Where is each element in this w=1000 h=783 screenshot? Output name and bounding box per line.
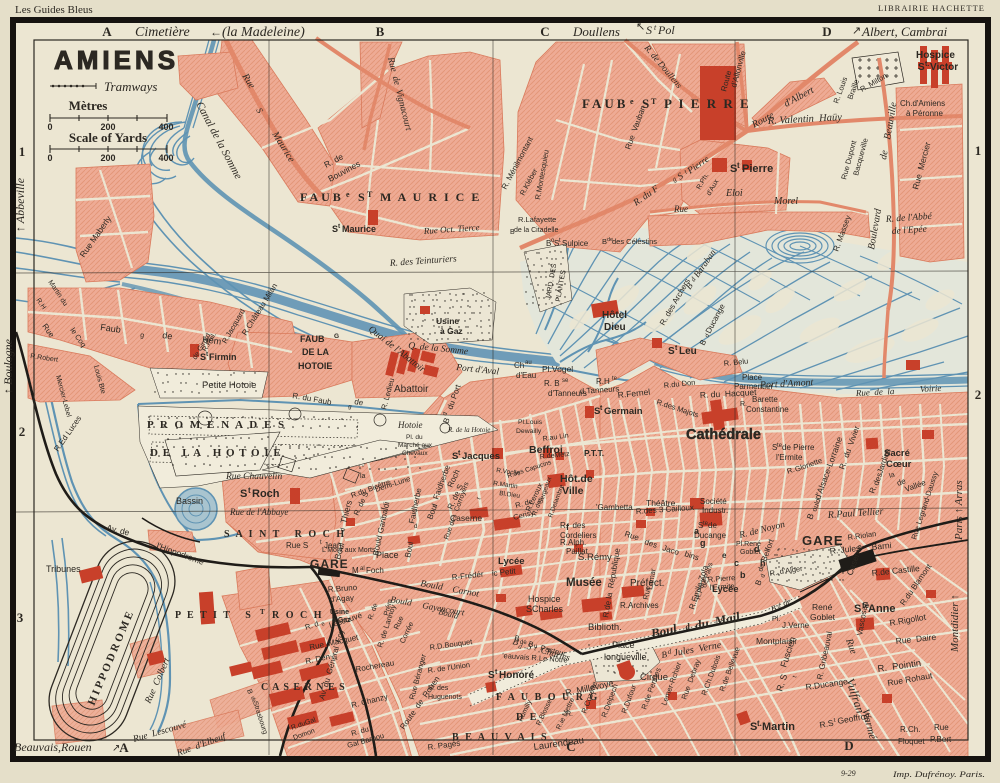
svg-text:Paillat: Paillat: [566, 547, 589, 556]
svg-text:2: 2: [975, 387, 982, 402]
svg-text:S: S: [668, 346, 675, 357]
svg-text:1: 1: [19, 144, 26, 159]
svg-text:Barni: Barni: [871, 540, 892, 552]
svg-text:A: A: [102, 24, 112, 39]
svg-text:P.T.T.: P.T.T.: [584, 448, 604, 458]
svg-text:Abattoir: Abattoir: [394, 384, 429, 395]
svg-text:FAUB: FAUB: [300, 190, 344, 204]
svg-text:g: g: [700, 538, 706, 548]
svg-text:Imp. Dufrénoy. Paris.: Imp. Dufrénoy. Paris.: [892, 769, 985, 779]
svg-text:Constantine: Constantine: [746, 405, 789, 414]
svg-text:↑ Boulogne: ↑ Boulogne: [1, 338, 15, 394]
svg-text:R.Archives: R.Archives: [620, 601, 659, 610]
svg-text:b: b: [740, 570, 746, 580]
svg-text:Les Guides Bleus: Les Guides Bleus: [15, 4, 93, 16]
svg-text:à Péronne: à Péronne: [906, 109, 943, 118]
svg-text:e: e: [722, 551, 727, 560]
svg-text:Doullens: Doullens: [572, 24, 620, 39]
svg-text:200: 200: [100, 153, 115, 163]
svg-text:Usine: Usine: [436, 316, 459, 326]
svg-text:A: A: [119, 740, 129, 755]
svg-text:Huguenots: Huguenots: [428, 694, 462, 701]
svg-text:D: D: [844, 738, 853, 753]
svg-text:des Célestins: des Célestins: [612, 237, 657, 246]
svg-text:Barette: Barette: [752, 395, 778, 404]
svg-text:Tribunes: Tribunes: [46, 564, 81, 574]
svg-text:Rue de la: Rue de la: [855, 386, 895, 398]
svg-text:B: B: [376, 24, 385, 39]
svg-text:R.: R.: [740, 401, 747, 408]
svg-text:t.: t.: [925, 61, 929, 68]
svg-text:Foch: Foch: [366, 566, 384, 575]
svg-text:S: S: [646, 23, 652, 37]
svg-text:e: e: [630, 97, 634, 106]
svg-text:Anne: Anne: [868, 603, 896, 615]
svg-text:HOTOIE: HOTOIE: [298, 361, 332, 371]
svg-text:Maurice: Maurice: [342, 224, 376, 234]
svg-text:Pl. du: Pl. du: [406, 434, 423, 441]
svg-text:Industr.: Industr.: [702, 506, 728, 515]
svg-text:Charles: Charles: [532, 604, 564, 614]
svg-text:Voirie: Voirie: [920, 383, 942, 394]
svg-text:Scale of Yards: Scale of Yards: [69, 130, 147, 145]
svg-text:al: al: [360, 566, 365, 572]
svg-text:0: 0: [47, 153, 52, 163]
svg-text:Cordeliers: Cordeliers: [560, 531, 596, 540]
svg-text:Martin: Martin: [762, 721, 795, 733]
svg-text:←: ←: [210, 25, 222, 39]
svg-text:Paris ↑ Arras: Paris ↑ Arras: [953, 480, 965, 541]
svg-text:Lycée: Lycée: [712, 584, 739, 595]
svg-text:Pol: Pol: [657, 23, 675, 37]
svg-text:R.Ch.: R.Ch.: [900, 725, 920, 734]
svg-text:Dewailly: Dewailly: [516, 428, 542, 435]
svg-text:Cimetière: Cimetière: [135, 25, 190, 40]
svg-text:1: 1: [975, 143, 982, 158]
svg-text:Marché aux: Marché aux: [398, 442, 433, 449]
svg-text:2: 2: [19, 424, 26, 439]
svg-text:0: 0: [47, 122, 52, 132]
svg-text:à Gaz: à Gaz: [440, 326, 463, 336]
svg-text:longueville: longueville: [604, 652, 647, 662]
svg-text:Jacques: Jacques: [462, 451, 500, 462]
svg-text:Albert, Cambrai: Albert, Cambrai: [861, 24, 948, 39]
svg-text:Beauvais,Rouen: Beauvais,Rouen: [14, 740, 92, 754]
svg-text:S: S: [918, 62, 925, 73]
svg-text:Usine: Usine: [330, 609, 349, 616]
svg-text:Tramways: Tramways: [104, 79, 157, 94]
svg-text:Pl.: Pl.: [772, 616, 780, 623]
svg-text:au: au: [525, 360, 532, 366]
svg-text:C A S E R N E S: C A S E R N E S: [261, 682, 346, 693]
svg-text:M: M: [352, 566, 359, 575]
svg-text:Rue S: Rue S: [286, 541, 308, 550]
svg-text:de Pierre: de Pierre: [782, 443, 815, 452]
svg-text:J.Verne: J.Verne: [782, 621, 810, 630]
svg-text:Rue: Rue: [673, 204, 688, 214]
svg-text:R.Lafayette: R.Lafayette: [518, 215, 556, 224]
svg-text:S: S: [240, 488, 247, 500]
svg-text:Firmin: Firmin: [209, 352, 237, 362]
svg-text:Sulpice: Sulpice: [562, 239, 589, 248]
svg-text:9-29: 9-29: [841, 769, 856, 778]
svg-text:se: se: [562, 378, 569, 384]
svg-text:Biblioth.: Biblioth.: [588, 622, 622, 633]
svg-text:Hospice: Hospice: [528, 594, 561, 604]
svg-text:GARE: GARE: [310, 557, 349, 571]
svg-text:Eloi: Eloi: [725, 188, 743, 199]
svg-text:Place: Place: [742, 373, 763, 382]
svg-text:t: t: [737, 161, 740, 170]
svg-text:Cœur: Cœur: [886, 459, 912, 470]
svg-text:Ch: Ch: [514, 361, 524, 370]
svg-text:AMIENS: AMIENS: [54, 45, 179, 75]
svg-text:G: G: [334, 333, 339, 340]
svg-text:Hôt.de: Hôt.de: [560, 473, 593, 485]
svg-text:T: T: [367, 190, 373, 199]
svg-text:Pierre: Pierre: [742, 163, 773, 175]
svg-text:↑ Abbeville: ↑ Abbeville: [13, 177, 27, 232]
svg-text:Musée: Musée: [566, 577, 602, 589]
svg-text:LIBRAIRIE HACHETTE: LIBRAIRIE HACHETTE: [878, 3, 985, 13]
svg-text:t: t: [248, 486, 251, 495]
svg-text:de: de: [708, 521, 717, 530]
svg-text:FAUB: FAUB: [582, 96, 628, 111]
svg-text:Victor: Victor: [930, 62, 958, 73]
svg-text:S: S: [358, 190, 365, 204]
svg-text:P.Bert: P.Bert: [930, 735, 952, 744]
svg-text:M A U R I C E: M A U R I C E: [380, 190, 481, 204]
svg-text:Rue de l'Abbaye: Rue de l'Abbaye: [229, 507, 288, 517]
svg-text:d'Eau: d'Eau: [516, 371, 536, 380]
svg-text:Pl.Vogel: Pl.Vogel: [542, 364, 573, 374]
svg-text:Germain: Germain: [604, 406, 643, 417]
svg-text:Cathédrale: Cathédrale: [686, 427, 761, 443]
svg-text:de: de: [520, 640, 527, 646]
svg-text:Mètres: Mètres: [69, 98, 108, 113]
svg-text:Hotoie: Hotoie: [397, 420, 423, 430]
svg-text:Hôtel: Hôtel: [602, 310, 627, 321]
svg-text:C: C: [540, 24, 549, 39]
svg-text:l'Ermite: l'Ermite: [776, 453, 803, 462]
svg-text:T: T: [260, 608, 265, 616]
svg-text:à Gaz: à Gaz: [332, 617, 351, 624]
svg-text:Floquet: Floquet: [898, 737, 925, 746]
svg-text:c: c: [734, 558, 739, 568]
svg-text:R. B: R. B: [544, 379, 560, 388]
svg-text:u: u: [534, 644, 537, 650]
svg-text:FAUB: FAUB: [300, 334, 325, 344]
svg-text:Société: Société: [700, 497, 727, 506]
svg-text:↗: ↗: [112, 743, 120, 754]
svg-text:L'Mont aux Morts: L'Mont aux Morts: [322, 547, 376, 554]
svg-text:R.: R.: [769, 568, 778, 578]
svg-text:Place: Place: [612, 640, 635, 650]
svg-text:↗: ↗: [852, 25, 861, 37]
svg-text:René: René: [812, 602, 833, 612]
svg-text:h: h: [760, 558, 766, 568]
svg-text:e: e: [346, 190, 350, 199]
svg-text:'Gambetta: 'Gambetta: [596, 503, 633, 512]
svg-text:Montdidier ↑: Montdidier ↑: [949, 594, 961, 653]
svg-text:Morel: Morel: [773, 196, 798, 207]
svg-text:d'Agay: d'Agay: [330, 593, 355, 604]
svg-text:Honoré: Honoré: [499, 670, 534, 681]
svg-text:S: S: [488, 670, 495, 681]
svg-text:Pl.Louis: Pl.Louis: [518, 419, 543, 426]
svg-text:Rue Chauvelin: Rue Chauvelin: [225, 472, 282, 482]
svg-text:Rue: Rue: [934, 723, 949, 732]
svg-text:P R O M E N A D E S: P R O M E N A D E S: [147, 419, 286, 431]
svg-text:te: te: [612, 376, 618, 382]
svg-text:de la Citadelle: de la Citadelle: [514, 227, 558, 234]
svg-text:D E L A H O T O I E: D E L A H O T O I E: [150, 447, 282, 459]
svg-text:Goblet: Goblet: [810, 612, 836, 622]
svg-text:P E T I T S: P E T I T S: [175, 610, 253, 621]
svg-text:↖: ↖: [636, 21, 645, 33]
svg-text:Roch: Roch: [252, 488, 280, 500]
svg-text:Leu: Leu: [679, 346, 697, 357]
svg-text:P I E R R E: P I E R R E: [664, 96, 751, 111]
svg-text:DE LA: DE LA: [302, 347, 330, 357]
svg-text:Petite Hotoie: Petite Hotoie: [202, 380, 256, 391]
svg-text:Chevaux: Chevaux: [402, 450, 428, 457]
svg-text:Bassin: Bassin: [176, 496, 203, 506]
svg-text:la: la: [360, 473, 366, 480]
svg-text:R. des: R. des: [560, 521, 585, 530]
svg-text:R. de la Hotoie: R. de la Hotoie: [447, 426, 490, 434]
svg-text:Hospice: Hospice: [916, 50, 955, 61]
svg-text:S A I N T R O C H: S A I N T R O C H: [224, 529, 346, 540]
svg-text:(la Madeleine): (la Madeleine): [222, 25, 305, 40]
svg-text:T: T: [651, 97, 657, 106]
svg-text:3: 3: [17, 610, 24, 625]
svg-text:d: d: [754, 544, 760, 554]
svg-text:Ch.d'Amiens: Ch.d'Amiens: [900, 99, 945, 108]
svg-text:D: D: [822, 24, 831, 39]
svg-text:400: 400: [158, 122, 173, 132]
svg-text:Lycée: Lycée: [498, 556, 525, 567]
svg-text:Ville: Ville: [562, 485, 584, 497]
svg-text:400: 400: [158, 153, 173, 163]
svg-text:Dieu: Dieu: [604, 322, 626, 333]
svg-text:de: de: [162, 330, 173, 341]
